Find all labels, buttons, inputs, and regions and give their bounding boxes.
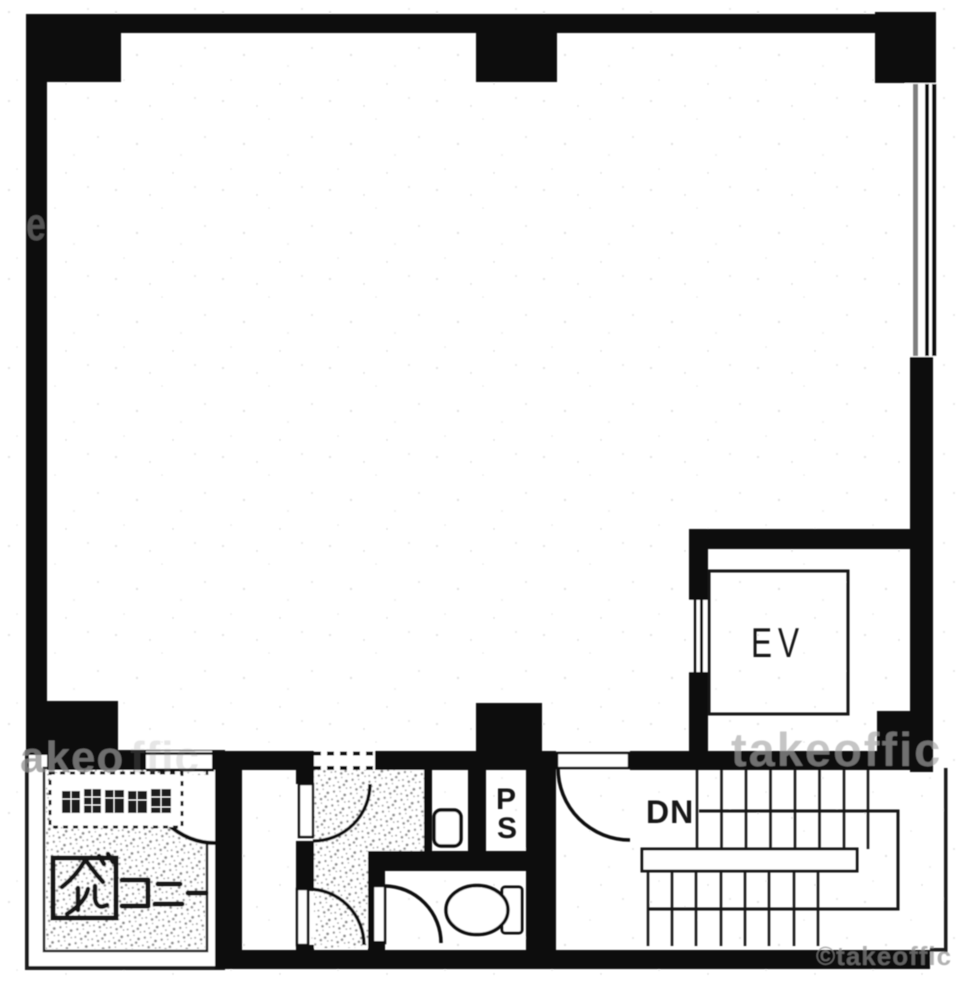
svg-text:©takeoffic: ©takeoffic xyxy=(816,941,952,971)
svg-text:EV: EV xyxy=(751,619,805,666)
svg-text:ffic: ffic xyxy=(130,733,200,782)
svg-text:DN: DN xyxy=(646,794,694,830)
svg-text:e: e xyxy=(26,199,46,250)
svg-text:S: S xyxy=(497,812,517,845)
svg-text:takeoffic: takeoffic xyxy=(731,723,942,776)
svg-text:akeo: akeo xyxy=(20,733,124,782)
